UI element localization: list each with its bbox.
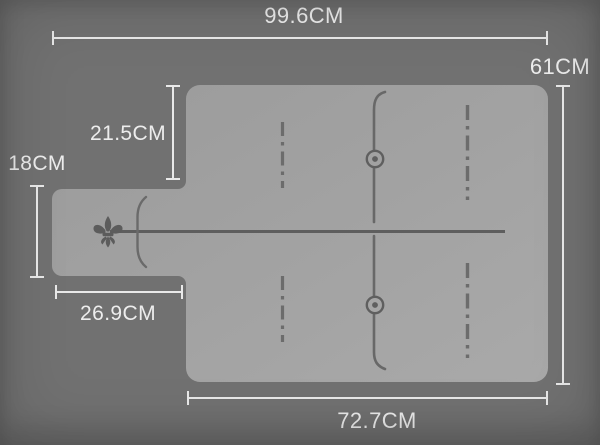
dim-label-lip-width: 26.9CM [80,302,156,325]
product-dimension-diagram: 99.6CM 61CM 21.5CM 18CM 26.9CM 72.7CM [0,0,600,445]
target-ring-upper-icon [367,151,383,167]
dim-label-lip-height: 18CM [8,152,66,175]
chair-mat-illustration [0,0,600,445]
dim-line-lip-width [55,291,183,293]
dim-label-top-width: 99.6CM [264,4,343,28]
dim-line-lip-height [36,185,38,278]
dim-line-top-width [52,37,548,39]
dim-line-bottom-width [187,397,548,399]
target-ring-lower-icon [367,297,383,313]
dim-label-bottom-width: 72.7CM [337,409,416,433]
dim-label-right-height: 61CM [530,55,590,79]
dim-label-upper-left-inset: 21.5CM [90,122,166,145]
dim-line-right-height [562,85,564,385]
dim-line-upper-left-inset [172,85,174,180]
